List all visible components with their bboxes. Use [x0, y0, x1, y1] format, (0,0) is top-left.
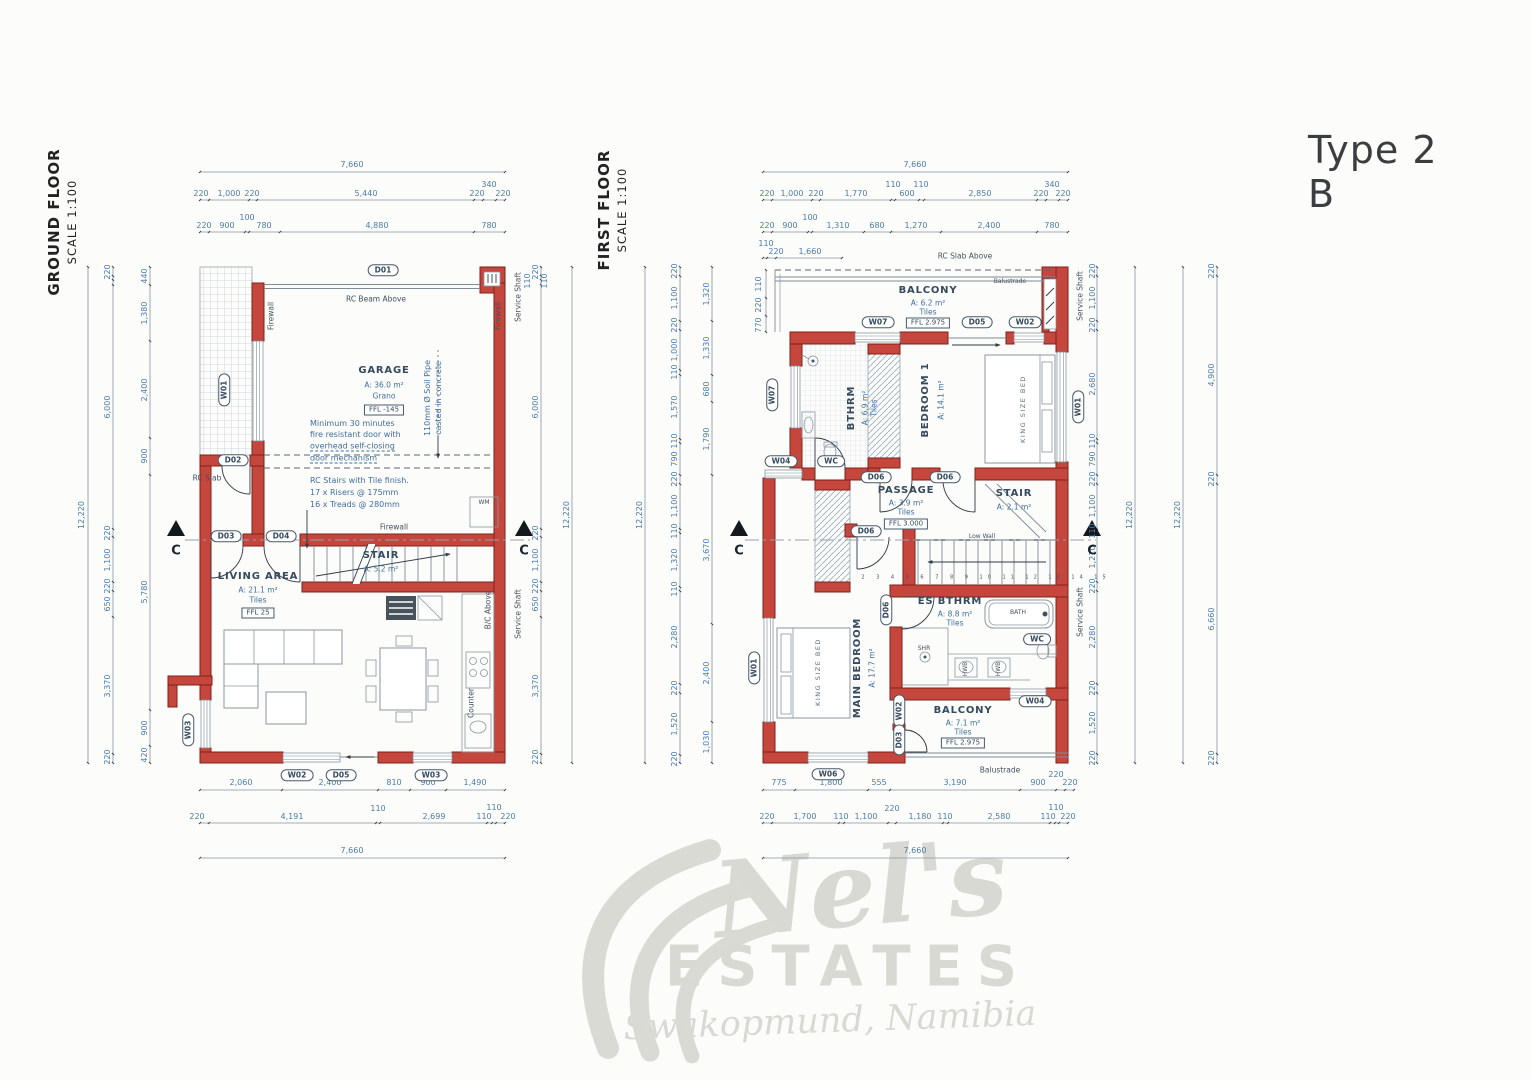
fixture-label: WM: [478, 500, 489, 506]
dimension-label: 110: [1040, 813, 1055, 821]
dimension-label: 100: [802, 214, 817, 222]
floor-level-tag: FFL 3.000: [884, 519, 928, 530]
room-area-label: A: 6.2 m²: [911, 299, 946, 307]
dimension-label: 1,100: [671, 287, 679, 310]
room-area-label: Tiles: [249, 596, 266, 604]
dimension-label: 220: [759, 222, 774, 230]
dimension-label: 220: [1089, 317, 1097, 332]
first-floor-name: FIRST FLOOR: [595, 150, 613, 271]
room-area-label: A: 3.9 m²: [889, 499, 924, 507]
door-window-tag: W02: [281, 769, 314, 781]
dimension-label: 2,280: [1089, 626, 1097, 649]
door-window-tag: D05: [326, 769, 357, 781]
room-name-label: GARAGE: [358, 366, 409, 376]
room-name-label: BALCONY: [934, 706, 993, 716]
door-window-tag: W03: [182, 714, 194, 747]
dimension-label: 220: [104, 749, 112, 764]
dimension-label: 1,270: [905, 222, 928, 230]
room-area-label: A: 17.7 m²: [868, 648, 876, 687]
dimension-label: 780: [256, 222, 271, 230]
dimension-label: 220: [1208, 750, 1216, 765]
first-floor-scale: SCALE 1:100: [615, 150, 629, 271]
dimension-label: 2,680: [1089, 373, 1097, 396]
section-marker-label: C: [519, 545, 529, 558]
dimension-label: 1,490: [464, 779, 487, 787]
dimension-label: 12,220: [563, 501, 571, 529]
dimension-label: 220: [244, 190, 259, 198]
dimension-label: 220: [532, 264, 540, 279]
ground-floor-name: GROUND FLOOR: [45, 148, 63, 295]
stair-tread-numbers: 2 3 4 5 6 7 8 9 10 11 12 13 14 15: [861, 576, 1110, 581]
dimension-label: 1,100: [104, 549, 112, 572]
dimension-label: 220: [759, 813, 774, 821]
room-name-label: STAIR: [363, 551, 399, 561]
room-name-label: LIVING AREA: [218, 572, 298, 582]
dimension-label: 220: [196, 222, 211, 230]
drawing-annotation: Firewall: [267, 302, 275, 330]
door-window-tag: W07: [862, 316, 895, 328]
drawing-annotation: Service Shaft: [514, 589, 522, 639]
room-name-label: PASSAGE: [878, 486, 934, 496]
room-area-label: Tiles: [919, 308, 936, 316]
dimension-label: 1,570: [671, 396, 679, 419]
door-window-tag: D06: [880, 595, 892, 626]
dimension-label: 1,100: [532, 549, 540, 572]
dimension-label: 220: [1060, 813, 1075, 821]
room-area-label: Grano: [373, 392, 396, 400]
dimension-label: 110: [671, 433, 679, 448]
dimension-label: 110: [524, 273, 532, 288]
dimension-label: 780: [481, 222, 496, 230]
dimension-label: 220: [671, 751, 679, 766]
dimension-label: 1,380: [141, 302, 149, 325]
dimension-label: 220: [1089, 750, 1097, 765]
door-window-tag: D05: [962, 316, 993, 328]
floor-plan-sheet: Nel's ESTATES Swakopmund, Namibia: [0, 0, 1530, 1080]
room-area-label: A: 6.9 m²: [861, 391, 869, 426]
dimension-label: 220: [532, 578, 540, 593]
annotation-layer: 7,6602201,0002205,4402203402202209001007…: [0, 0, 1530, 1080]
dimension-label: 900: [141, 448, 149, 463]
furniture-label: KING SIZE BED: [815, 638, 822, 706]
construction-note: 16 x Treads @ 280mm: [310, 501, 400, 509]
drawing-annotation: RC Beam Above: [346, 295, 406, 303]
dimension-label: 1,000: [218, 190, 241, 198]
drawing-annotation: RC Slab Above: [938, 252, 993, 260]
fixture-label: BATH: [1010, 610, 1026, 616]
dimension-label: 2,850: [969, 190, 992, 198]
door-window-tag: D06: [861, 471, 892, 483]
dimension-label: 6,660: [1208, 608, 1216, 631]
dimension-label: 220: [1089, 578, 1097, 593]
dimension-label: 900: [1030, 779, 1045, 787]
floor-level-tag: FFL 2.975: [941, 738, 985, 749]
dimension-label: 110: [541, 273, 549, 288]
furniture-label: KING SIZE BED: [1020, 375, 1027, 443]
door-window-tag: W02: [893, 695, 905, 728]
dimension-label: 2,580: [988, 813, 1011, 821]
dimension-label: 4,900: [1208, 364, 1216, 387]
dimension-label: 1,320: [703, 283, 711, 306]
dimension-label: 7,660: [341, 847, 364, 855]
dimension-label: 7,660: [904, 161, 927, 169]
dimension-label: 1,030: [703, 731, 711, 754]
dimension-label: 110: [370, 805, 385, 813]
dimension-label: 900: [219, 222, 234, 230]
dimension-label: 220: [1208, 263, 1216, 278]
room-name-label: STAIR: [996, 489, 1032, 499]
fixture-label: Balustrade: [994, 279, 1026, 285]
dimension-label: 220: [500, 813, 515, 821]
dimension-label: 2,400: [703, 662, 711, 685]
fixture-label: SHR: [918, 646, 931, 652]
floor-level-tag: FFL 2.975: [906, 318, 950, 329]
dimension-label: 220: [495, 190, 510, 198]
dimension-label: 110: [671, 581, 679, 596]
dimension-label: 4,191: [281, 813, 304, 821]
drawing-annotation: RC Slab: [193, 474, 222, 482]
door-window-tag: WC: [817, 455, 845, 467]
drawing-annotation: Service Shaft: [1076, 271, 1084, 321]
dimension-label: 220: [671, 471, 679, 486]
room-name-label: ES BTHRM: [918, 597, 982, 607]
dimension-label: 680: [869, 222, 884, 230]
dimension-label: 220: [759, 190, 774, 198]
room-area-label: A: 8.8 m²: [938, 610, 973, 618]
first-floor-title: FIRST FLOOR SCALE 1:100: [595, 150, 629, 271]
dimension-label: 220: [1048, 771, 1063, 779]
ground-floor-scale: SCALE 1:100: [65, 148, 79, 295]
dimension-label: 440: [141, 268, 149, 283]
dimension-label: 1,660: [799, 248, 822, 256]
dimension-label: 1,100: [855, 813, 878, 821]
dimension-label: 110: [486, 804, 501, 812]
dimension-label: 340: [1044, 181, 1059, 189]
dimension-label: 220: [884, 805, 899, 813]
room-area-label: A: 21.1 m²: [238, 586, 277, 594]
section-marker-label: C: [1087, 545, 1097, 558]
dimension-label: 680: [703, 381, 711, 396]
dimension-label: 2,060: [230, 779, 253, 787]
drawing-annotation: Service Shaft: [514, 272, 522, 322]
door-window-tag: D03: [893, 725, 905, 756]
dimension-label: 3,370: [104, 675, 112, 698]
room-area-label: A: 36.0 m²: [364, 381, 403, 389]
door-window-tag: D03: [211, 530, 242, 542]
door-window-tag: D06: [930, 471, 961, 483]
dimension-label: 220: [808, 190, 823, 198]
drawing-annotation: Firewall: [494, 302, 502, 330]
fixture-label: Low Wall: [969, 534, 995, 540]
dimension-label: 1,330: [703, 337, 711, 360]
dimension-label: 7,660: [904, 847, 927, 855]
dimension-label: 110: [885, 181, 900, 189]
dimension-label: 220: [671, 263, 679, 278]
dimension-label: 100: [239, 214, 254, 222]
room-area-label: Tiles: [946, 619, 963, 627]
door-window-tag: W06: [812, 768, 845, 780]
room-name-label: MAIN BEDROOM: [853, 618, 863, 718]
dimension-label: 220: [532, 525, 540, 540]
dimension-label: 220: [1089, 263, 1097, 278]
dimension-label: 220: [1089, 680, 1097, 695]
dimension-label: 555: [871, 779, 886, 787]
dimension-label: 1,180: [909, 813, 932, 821]
door-window-tag: W07: [766, 379, 778, 412]
room-area-label: A: 14.1 m²: [937, 380, 945, 419]
door-window-tag: D06: [851, 525, 882, 537]
dimension-label: 220: [1055, 190, 1070, 198]
construction-note: 110mm Ø Soil Pipe: [424, 360, 432, 436]
drawing-annotation: B/C Above: [484, 591, 492, 630]
construction-note: fire resistant door with: [310, 431, 401, 439]
dimension-label: 1,100: [1089, 495, 1097, 518]
dimension-label: 1,100: [671, 495, 679, 518]
dimension-label: 110: [671, 364, 679, 379]
dimension-label: 3,670: [703, 539, 711, 562]
dimension-label: 110: [937, 813, 952, 821]
dimension-label: 1,520: [1089, 712, 1097, 735]
dimension-label: 650: [532, 596, 540, 611]
section-marker-label: C: [171, 545, 181, 558]
dimension-label: 6,000: [532, 396, 540, 419]
dimension-label: 220: [193, 190, 208, 198]
dimension-label: 1,700: [794, 813, 817, 821]
dimension-label: 220: [1033, 190, 1048, 198]
room-name-label: BTHRM: [847, 386, 857, 430]
dimension-label: 110: [1048, 804, 1063, 812]
room-name-label: BEDROOM 1: [921, 362, 931, 437]
door-window-tag: W02: [1009, 316, 1042, 328]
construction-note: Minimum 30 minutes: [310, 420, 395, 428]
door-window-tag: W01: [748, 652, 760, 685]
dimension-label: 1,100: [1089, 287, 1097, 310]
construction-note: casted in concrete: [435, 361, 443, 435]
dimension-label: 12,220: [636, 501, 644, 529]
drawing-annotation: Counter: [467, 688, 475, 718]
door-window-tag: W04: [1019, 695, 1052, 707]
dimension-label: 420: [141, 747, 149, 762]
dimension-label: 220: [1208, 471, 1216, 486]
room-area-label: A: 5.2 m²: [364, 565, 399, 573]
dimension-label: 220: [1089, 471, 1097, 486]
dimension-label: 900: [141, 720, 149, 735]
dimension-label: 810: [386, 779, 401, 787]
dimension-label: 790: [671, 451, 679, 466]
dimension-label: 12,220: [1126, 501, 1134, 529]
dimension-label: 5,440: [355, 190, 378, 198]
dimension-label: 775: [771, 779, 786, 787]
construction-note: RC Stairs with Tile finish.: [310, 477, 409, 485]
dimension-label: 110: [1089, 523, 1097, 538]
door-window-tag: W01: [1072, 391, 1084, 424]
construction-note: door mechanism: [310, 455, 377, 464]
dimension-label: 110: [755, 276, 763, 291]
dimension-label: 6,000: [104, 396, 112, 419]
dimension-label: 220: [189, 813, 204, 821]
door-window-tag: W03: [415, 769, 448, 781]
construction-note: overhead self-closing: [310, 443, 395, 452]
dimension-label: 900: [782, 222, 797, 230]
door-window-tag: WC: [1023, 633, 1051, 645]
drawing-annotation: Balustrade: [980, 766, 1020, 774]
dimension-label: 110: [1089, 433, 1097, 448]
dimension-label: 1,000: [671, 339, 679, 362]
room-area-label: Tiles: [870, 399, 878, 416]
dimension-label: 12,220: [1174, 501, 1182, 529]
dimension-label: 110: [476, 813, 491, 821]
door-window-tag: D01: [368, 264, 399, 276]
dimension-label: 220: [671, 680, 679, 695]
dimension-label: 2,699: [423, 813, 446, 821]
room-area-label: Tiles: [954, 728, 971, 736]
dimension-label: 220: [104, 525, 112, 540]
dimension-label: 780: [1044, 222, 1059, 230]
dimension-label: 110: [833, 813, 848, 821]
dimension-label: 220: [671, 317, 679, 332]
door-window-tag: D02: [218, 454, 249, 466]
dimension-label: 340: [481, 181, 496, 189]
dimension-label: 1,800: [820, 779, 843, 787]
floor-level-tag: FFL -145: [364, 405, 404, 416]
construction-note: 17 x Risers @ 175mm: [310, 489, 398, 497]
dimension-label: 220: [1062, 779, 1077, 787]
door-window-tag: W04: [765, 455, 798, 467]
dimension-label: 790: [1089, 451, 1097, 466]
dimension-label: 1,520: [671, 713, 679, 736]
dimension-label: 650: [104, 596, 112, 611]
dimension-label: 600: [899, 190, 914, 198]
section-marker-label: C: [734, 545, 744, 558]
room-area-label: A: 7.1 m²: [946, 719, 981, 727]
dimension-label: 3,190: [944, 779, 967, 787]
room-area-label: A: 2.1 m²: [997, 503, 1032, 511]
dimension-label: 1,310: [827, 222, 850, 230]
dimension-label: 5,780: [141, 581, 149, 604]
dimension-label: 12,220: [78, 501, 86, 529]
dimension-label: 1,000: [781, 190, 804, 198]
dimension-label: 2,280: [671, 626, 679, 649]
dimension-label: 110: [913, 181, 928, 189]
dimension-label: 3,370: [532, 675, 540, 698]
door-window-tag: W01: [218, 374, 230, 407]
dimension-label: 4,880: [366, 222, 389, 230]
ground-floor-title: GROUND FLOOR SCALE 1:100: [45, 148, 79, 295]
dimension-label: 110: [671, 523, 679, 538]
floor-level-tag: FFL 25: [241, 608, 274, 619]
dimension-label: 220: [768, 248, 783, 256]
dimension-label: 220: [755, 297, 763, 312]
dimension-label: 220: [104, 264, 112, 279]
door-window-tag: D04: [266, 530, 297, 542]
dimension-label: 220: [532, 749, 540, 764]
plan-type-heading: Type 2 B: [1308, 128, 1456, 216]
dimension-label: 220: [469, 190, 484, 198]
room-name-label: BALCONY: [899, 286, 958, 296]
dimension-label: 2,400: [141, 379, 149, 402]
dimension-label: 1,770: [845, 190, 868, 198]
drawing-annotation: Firewall: [380, 523, 408, 531]
drawing-annotation: Service Shaft: [1076, 587, 1084, 637]
dimension-label: 1,320: [671, 549, 679, 572]
dimension-label: 1,790: [703, 428, 711, 451]
dimension-label: 770: [755, 317, 763, 332]
dimension-label: 7,660: [341, 161, 364, 169]
fixture-label: HWB: [996, 662, 1002, 677]
fixture-label: HWB: [963, 662, 969, 677]
room-area-label: Tiles: [897, 508, 914, 516]
dimension-label: 2,400: [978, 222, 1001, 230]
dimension-label: 220: [104, 578, 112, 593]
